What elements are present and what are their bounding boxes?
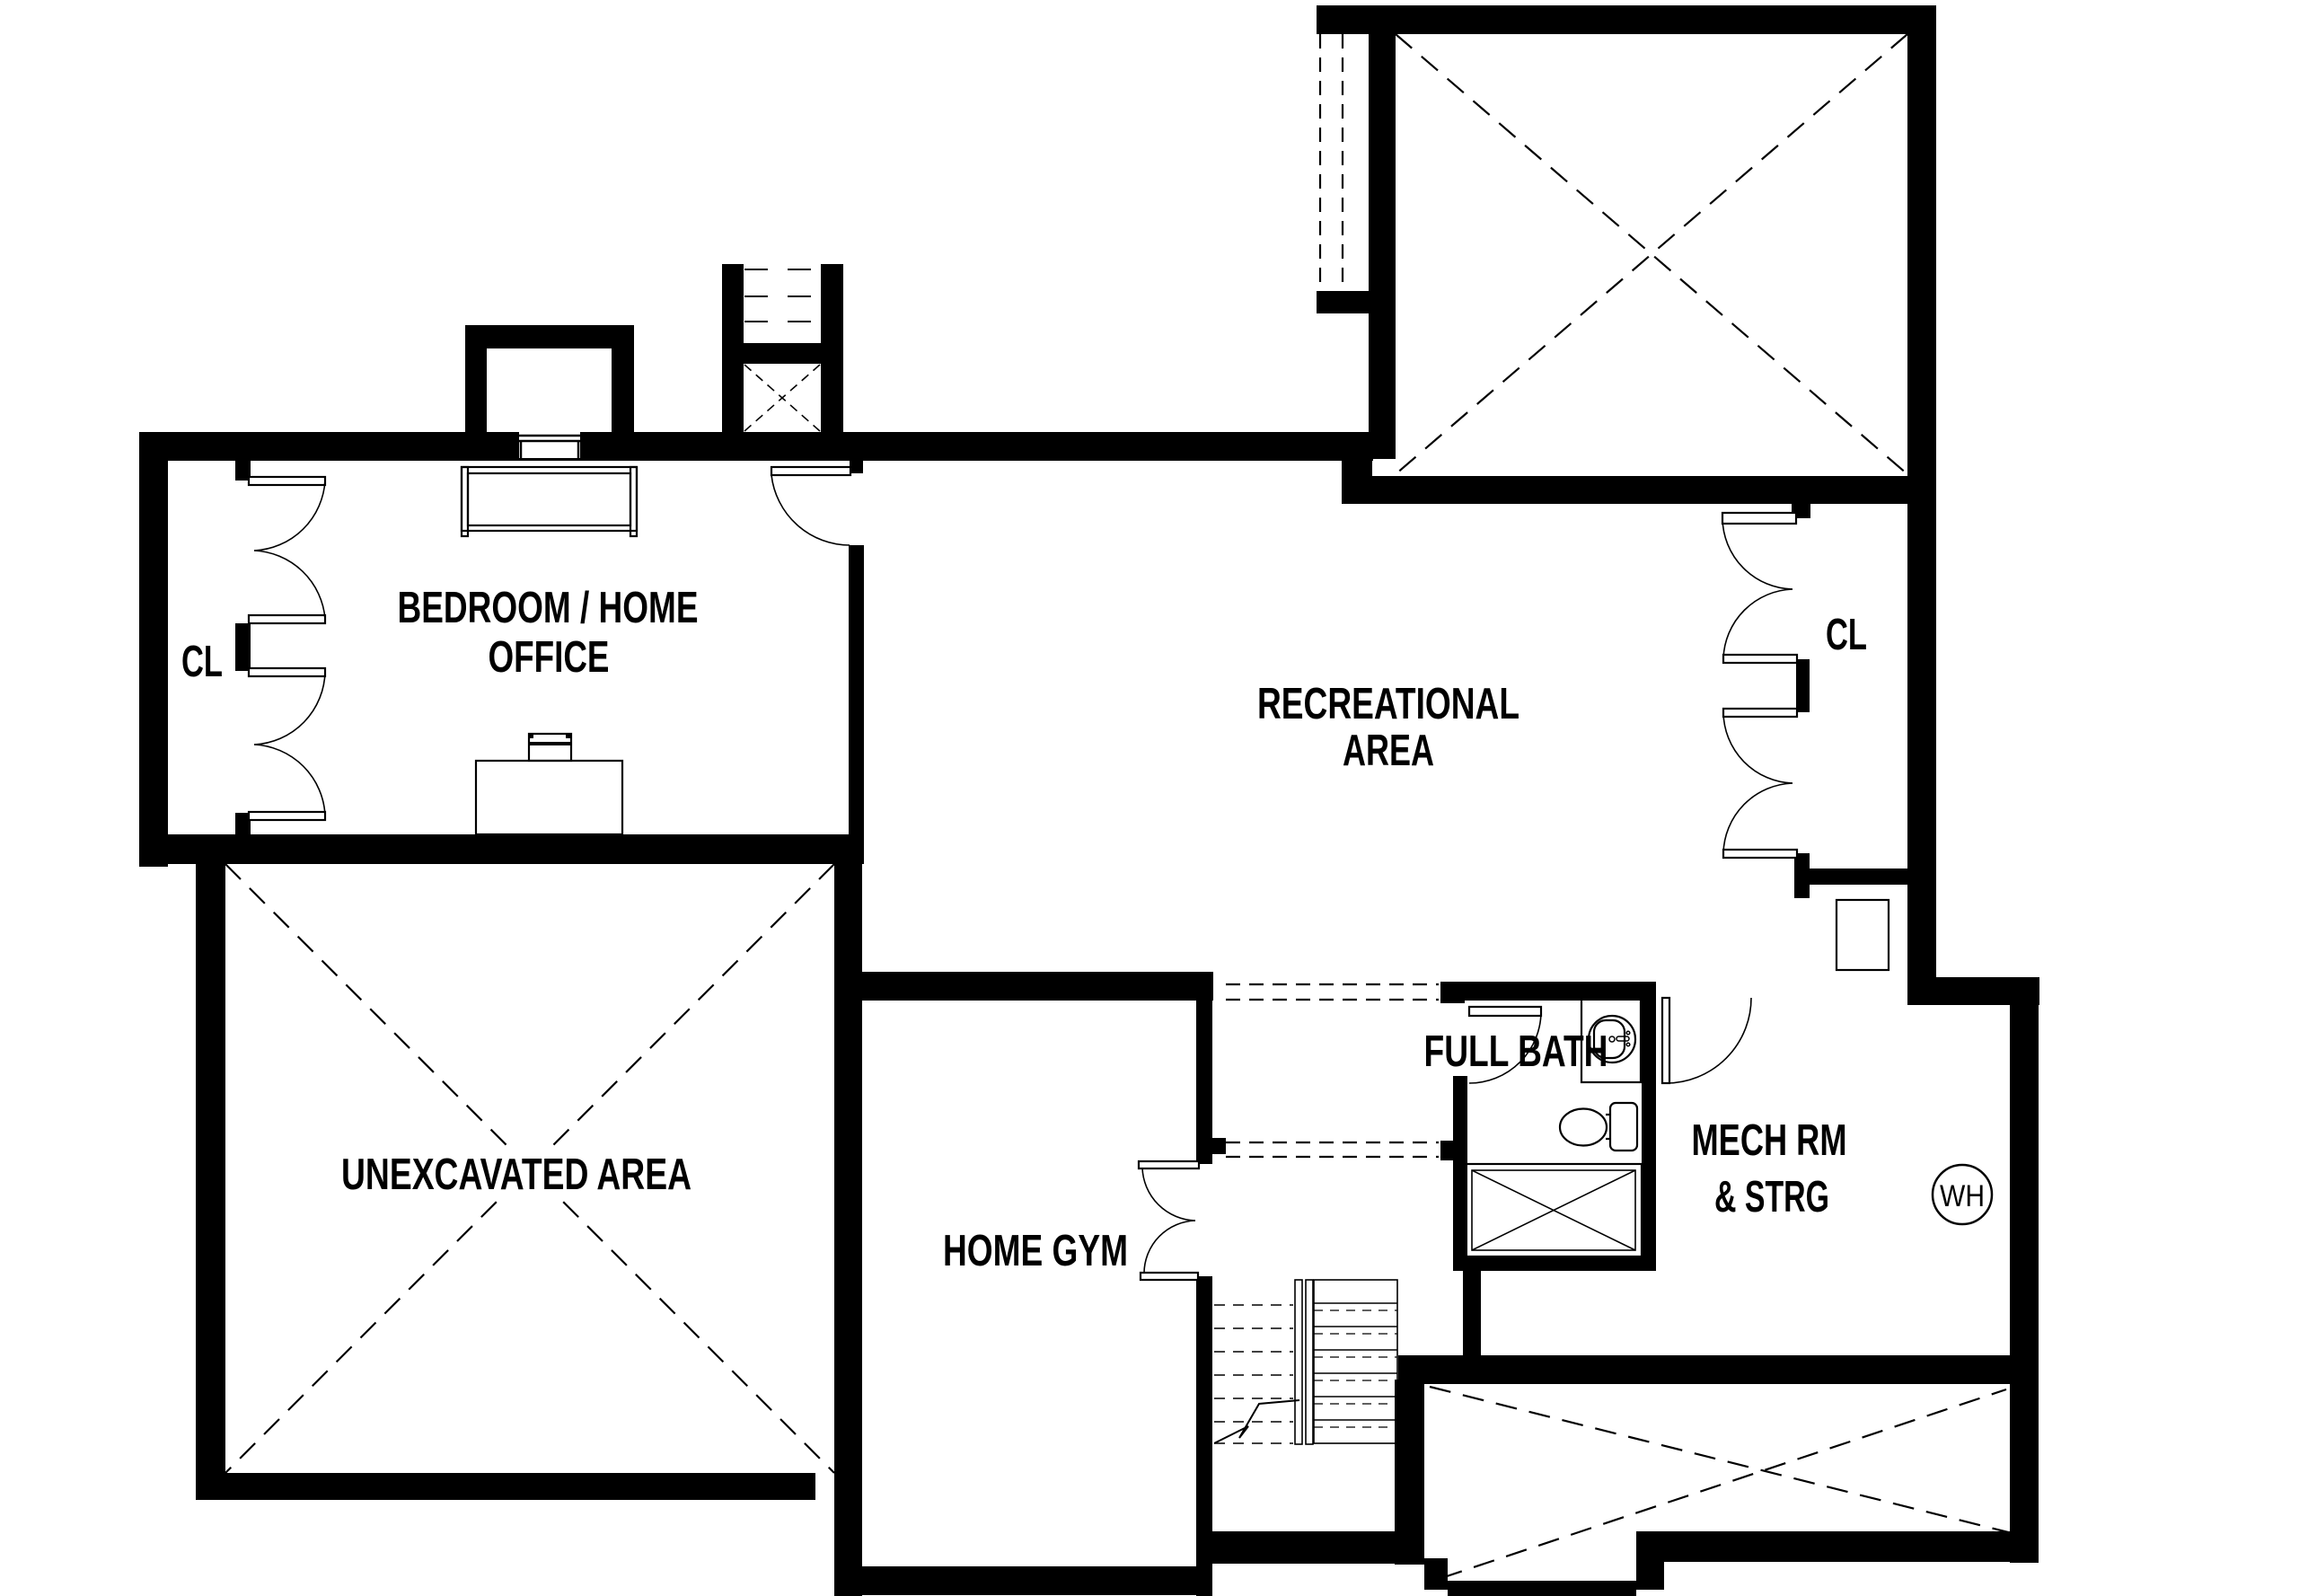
svg-text:BEDROOM / HOME: BEDROOM / HOME [398, 584, 699, 632]
svg-text:WH: WH [1940, 1179, 1985, 1213]
svg-text:RECREATIONAL: RECREATIONAL [1257, 680, 1519, 728]
svg-text:FULL BATH: FULL BATH [1424, 1027, 1608, 1076]
svg-text:MECH RM: MECH RM [1692, 1116, 1847, 1165]
svg-text:OFFICE: OFFICE [489, 633, 610, 682]
svg-text:HOME GYM: HOME GYM [943, 1227, 1128, 1275]
svg-text:CL: CL [181, 638, 223, 686]
svg-text:UNEXCAVATED AREA: UNEXCAVATED AREA [341, 1151, 691, 1199]
svg-text:& STRG: & STRG [1714, 1173, 1829, 1221]
svg-text:CL: CL [1826, 611, 1867, 659]
svg-text:AREA: AREA [1343, 727, 1434, 775]
